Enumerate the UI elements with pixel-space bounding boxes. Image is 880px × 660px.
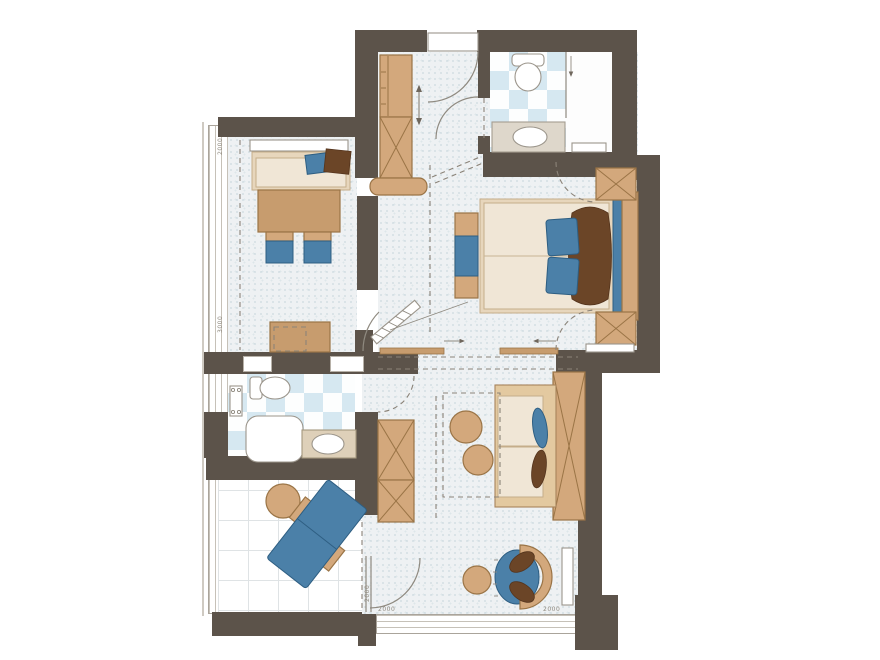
bath1-door-swing-arc bbox=[436, 97, 478, 139]
toilet-icon-2 bbox=[260, 377, 290, 399]
curtain-arc-1 bbox=[556, 162, 596, 202]
sofa-pillow-brown bbox=[324, 149, 351, 174]
bed-pillow-1 bbox=[546, 218, 579, 256]
entry-door-swing-arc bbox=[428, 52, 478, 102]
entry-wardrobe-shelves bbox=[380, 55, 412, 117]
bed-runner bbox=[613, 197, 622, 315]
floor-plan: 2000 3000 2000 2000 2000 bbox=[0, 0, 880, 660]
entry-sideboard bbox=[370, 178, 427, 195]
bath-mat bbox=[572, 143, 606, 152]
dim-label-1: 2000 bbox=[217, 138, 224, 155]
window-sill bbox=[586, 344, 634, 352]
pouf-2 bbox=[463, 445, 493, 475]
sink-icon bbox=[513, 127, 547, 147]
bathroom-top bbox=[436, 52, 612, 152]
toilet-icon bbox=[515, 63, 541, 91]
shower-icon bbox=[246, 416, 303, 462]
dim-label-3: 2000 bbox=[364, 585, 371, 602]
dim-label-2: 3000 bbox=[217, 316, 224, 333]
sink-icon-2 bbox=[312, 434, 344, 454]
chair-seat-2 bbox=[304, 241, 331, 263]
terrace bbox=[261, 475, 373, 593]
living-room bbox=[240, 140, 351, 352]
bathroom-lower bbox=[230, 377, 356, 462]
dim-label-4: 2000 bbox=[378, 606, 395, 613]
bed-bench-cushion bbox=[455, 236, 478, 276]
entry-door-leaf bbox=[428, 33, 478, 51]
plan-graphics: 2000 3000 2000 2000 2000 bbox=[0, 0, 880, 660]
bath2-door-swing-arc bbox=[378, 376, 414, 412]
shower-area bbox=[566, 52, 612, 152]
sliding-track-2 bbox=[500, 348, 558, 354]
terrace-door-swing-arc bbox=[370, 558, 420, 608]
dim-label-5: 2000 bbox=[543, 606, 560, 613]
bedroom bbox=[455, 162, 638, 352]
pouf-3 bbox=[463, 566, 491, 594]
sliding-track-1 bbox=[380, 348, 444, 354]
hall-lower bbox=[362, 376, 436, 612]
chair-back-1 bbox=[266, 232, 293, 241]
rug-dashed-outline bbox=[443, 393, 500, 497]
sill-column bbox=[562, 548, 573, 605]
bed-pillow-2 bbox=[546, 257, 579, 295]
headboard bbox=[622, 192, 638, 320]
pouf-1 bbox=[450, 411, 482, 443]
dining-table bbox=[258, 190, 340, 232]
chair-back-2 bbox=[304, 232, 331, 241]
entry-area bbox=[370, 33, 483, 195]
chair-seat-1 bbox=[266, 241, 293, 263]
